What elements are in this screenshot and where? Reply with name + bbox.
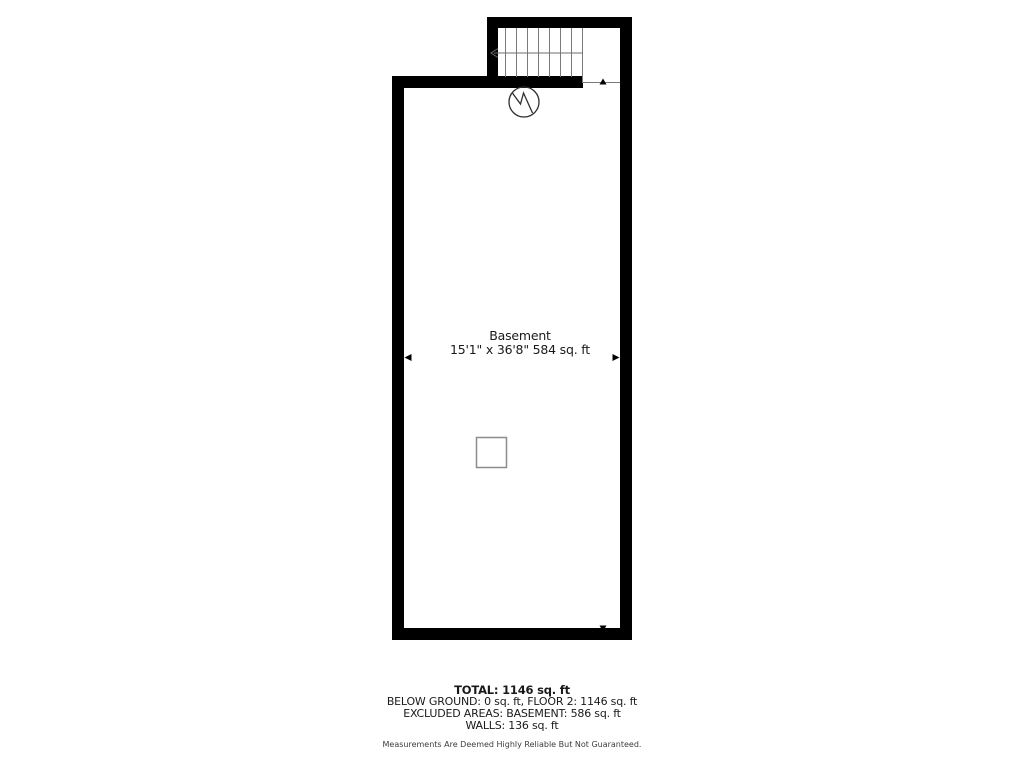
bottom-wall bbox=[392, 628, 632, 640]
dim-arrow-up-icon bbox=[600, 79, 607, 85]
detector-circle bbox=[509, 87, 539, 117]
room-name: Basement bbox=[404, 329, 636, 343]
room-label: Basement 15'1" x 36'8" 584 sq. ft bbox=[404, 329, 636, 357]
floorplan-drawing bbox=[0, 0, 1024, 768]
left-wall bbox=[392, 76, 404, 640]
stair-top-wall bbox=[487, 17, 632, 28]
room-dimensions: 15'1" x 36'8" 584 sq. ft bbox=[404, 343, 636, 357]
floorplan-page: Basement 15'1" x 36'8" 584 sq. ft TOTAL:… bbox=[0, 0, 1024, 768]
summary-walls: WALLS: 136 sq. ft bbox=[0, 720, 1024, 732]
summary-disclaimer: Measurements Are Deemed Highly Reliable … bbox=[0, 739, 1024, 751]
support-post bbox=[477, 438, 507, 468]
circle-zigzag-icon bbox=[509, 87, 539, 117]
top-wall bbox=[392, 76, 583, 88]
area-summary: TOTAL: 1146 sq. ft BELOW GROUND: 0 sq. f… bbox=[0, 684, 1024, 751]
staircase bbox=[491, 28, 620, 83]
detector-zigzag bbox=[512, 93, 533, 114]
